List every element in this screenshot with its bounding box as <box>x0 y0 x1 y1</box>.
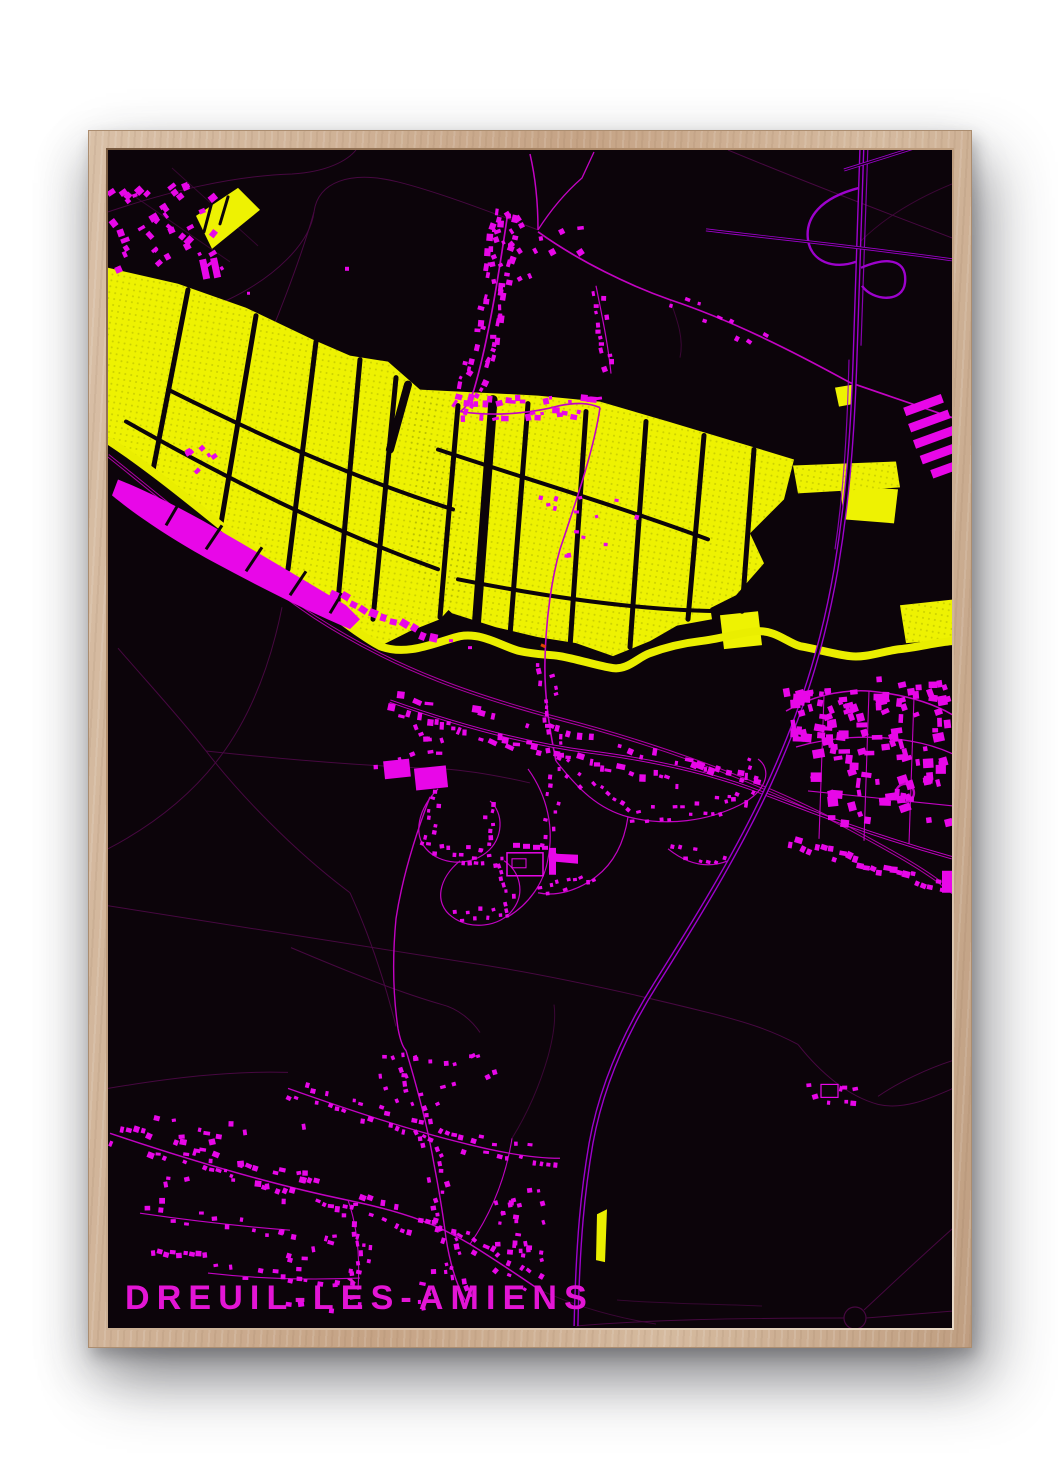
poster-frame: DREUIL-LÈS-AMIENS <box>88 130 972 1348</box>
yellow-sliver <box>596 1209 607 1262</box>
frame-inner-lip: DREUIL-LÈS-AMIENS <box>106 148 954 1330</box>
city-map-graphic <box>108 150 952 1328</box>
map-poster: DREUIL-LÈS-AMIENS <box>108 150 952 1328</box>
poster-title: DREUIL-LÈS-AMIENS <box>125 1281 594 1315</box>
greenhouse-stripes <box>901 393 952 480</box>
marsh-halftone-texture <box>108 268 952 656</box>
outlined-buildings <box>507 853 838 1098</box>
